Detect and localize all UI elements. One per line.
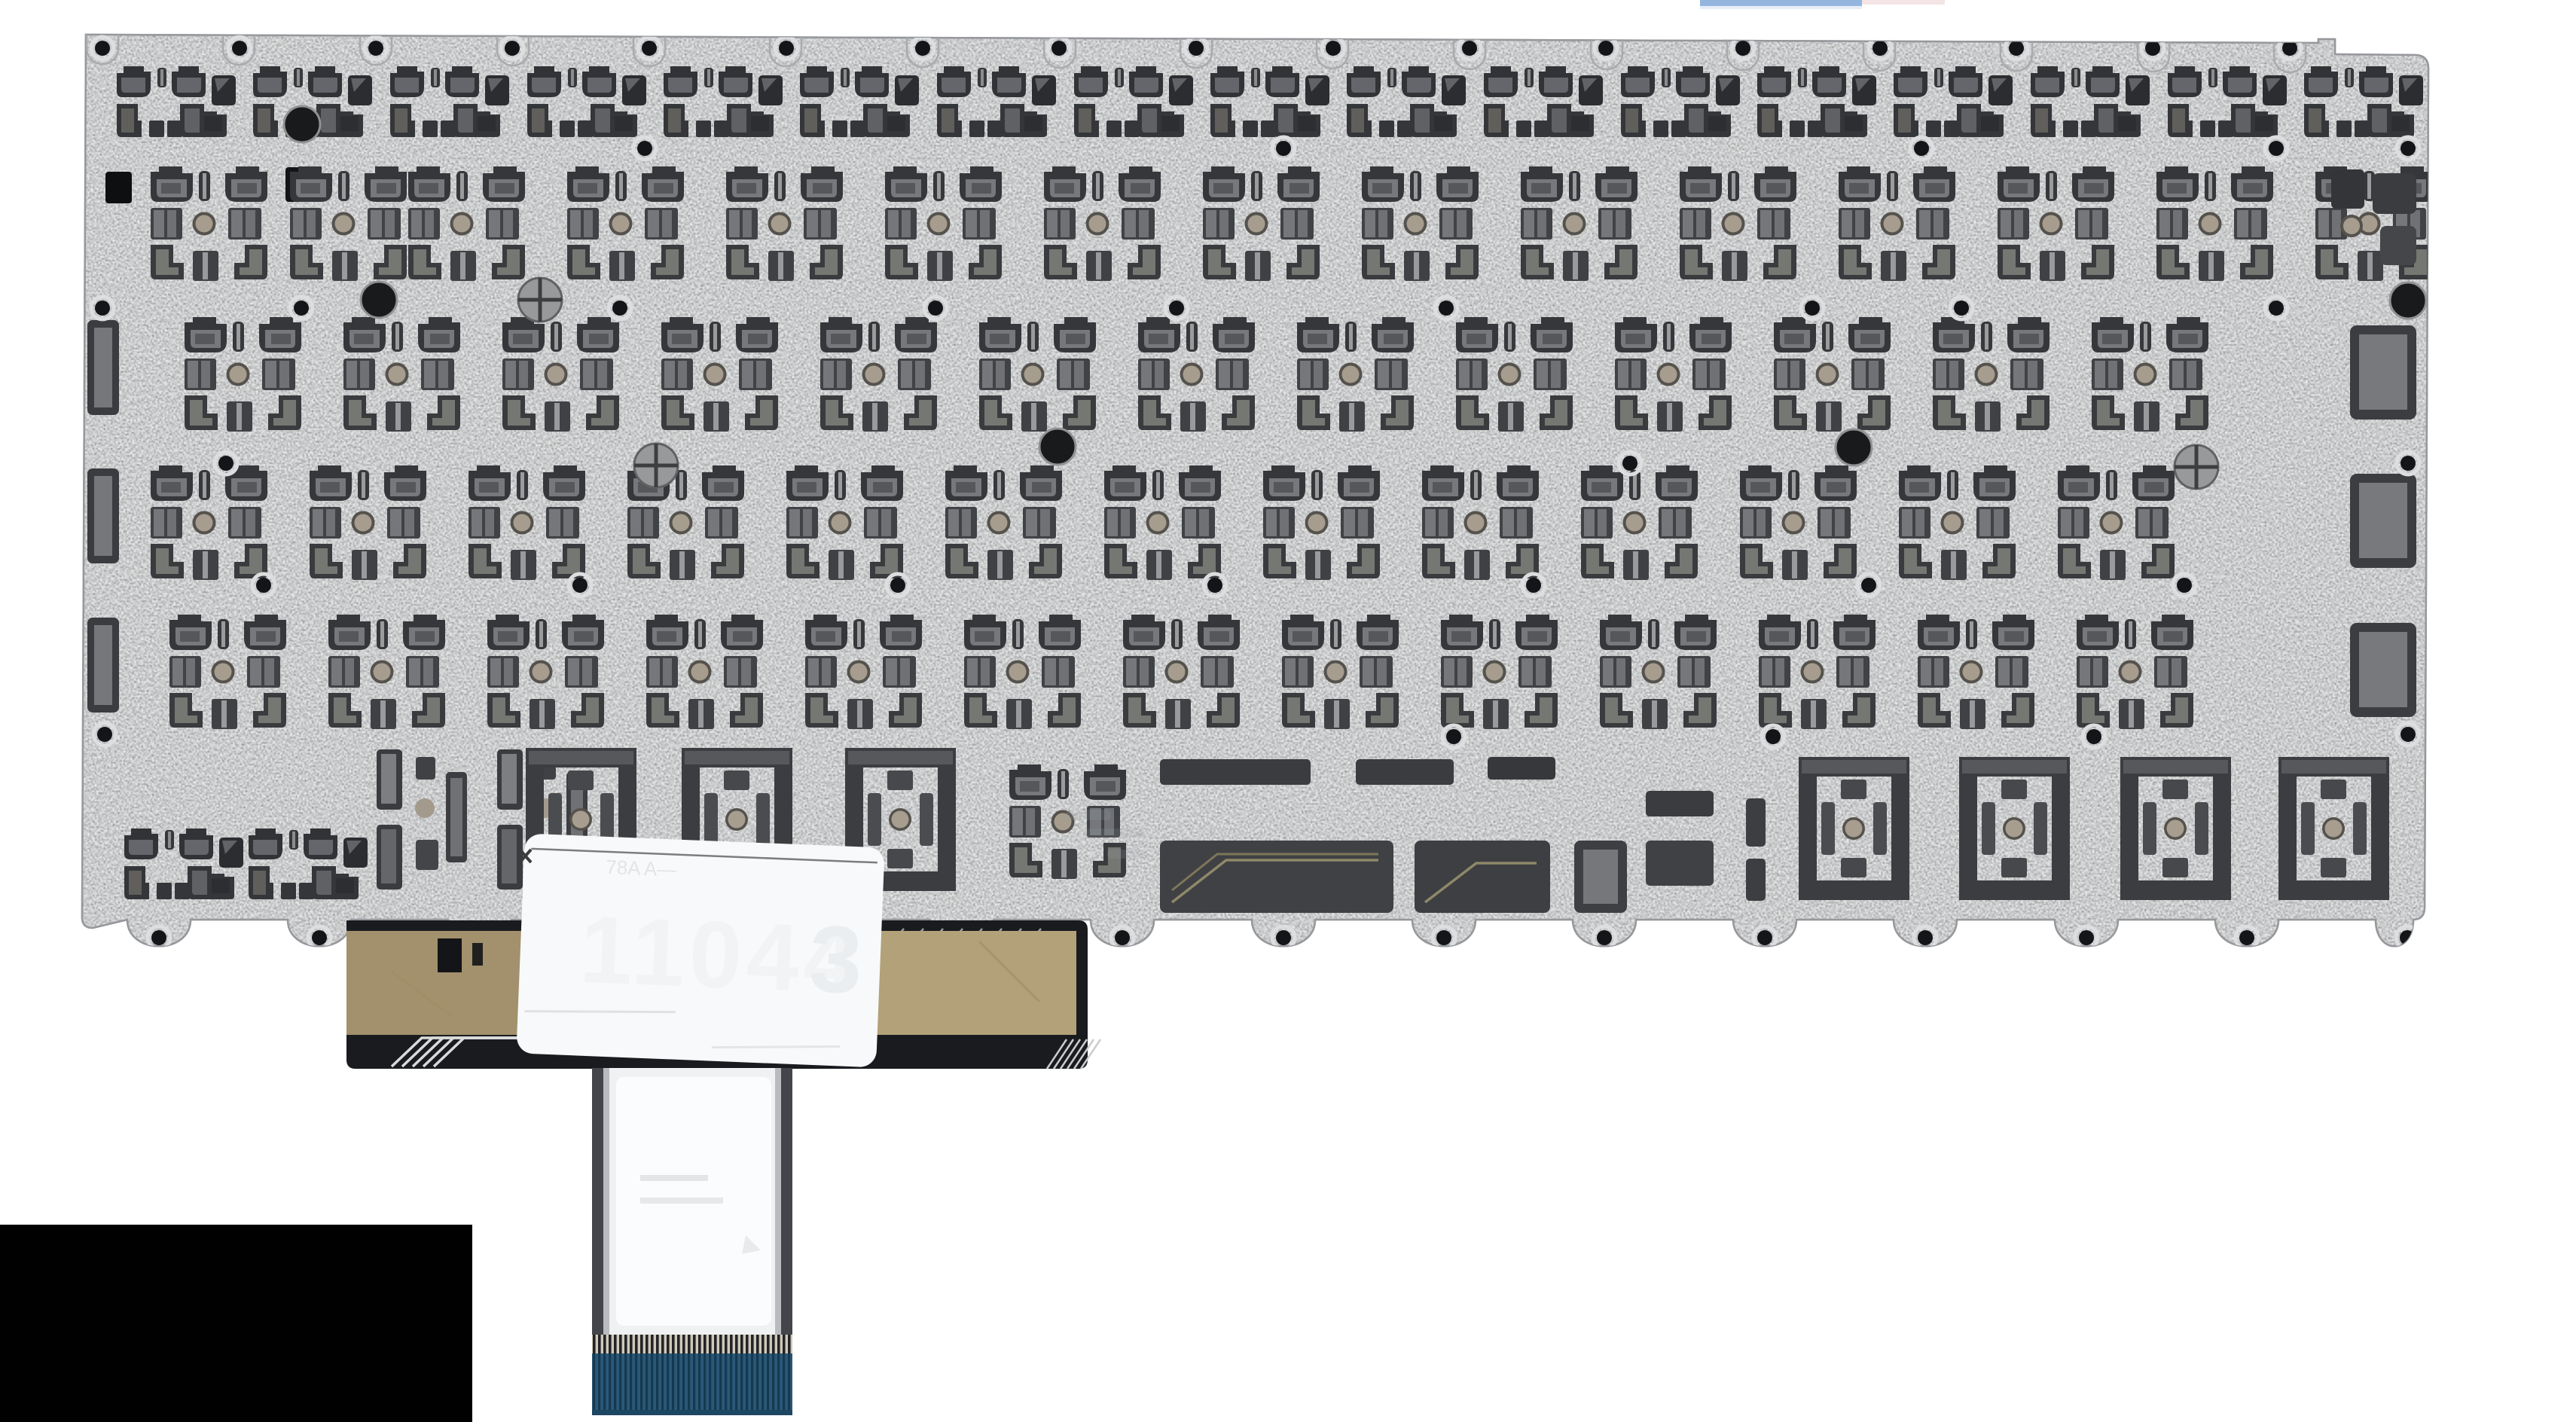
svg-text:3: 3 [807, 905, 865, 1014]
svg-text:78A A—: 78A A— [606, 856, 677, 881]
